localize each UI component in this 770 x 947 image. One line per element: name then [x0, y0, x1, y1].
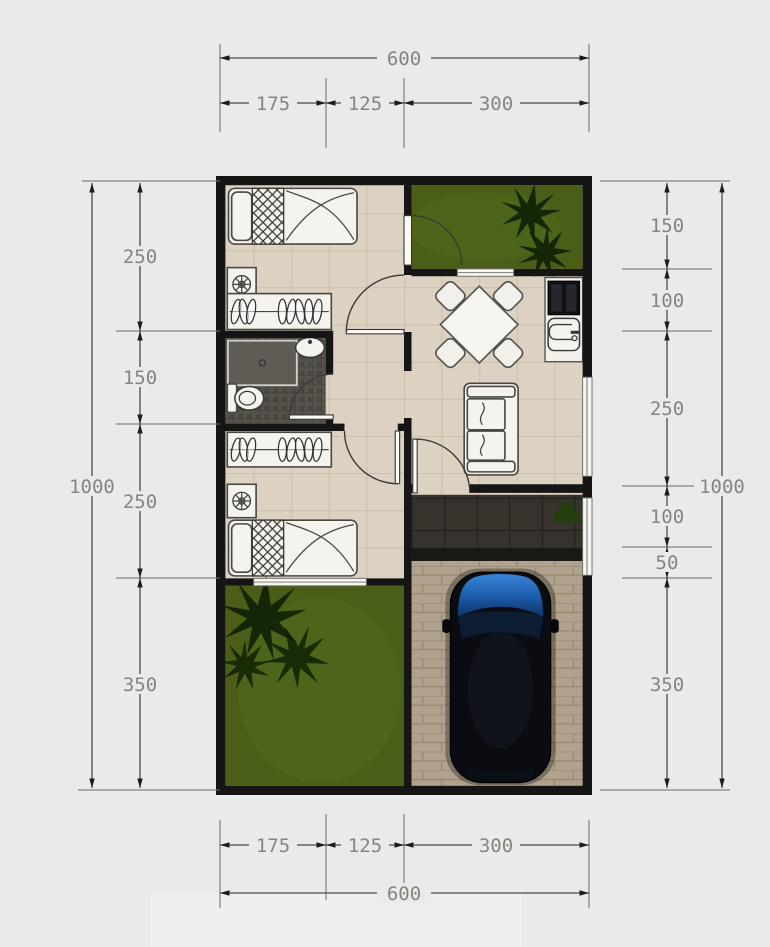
dim-left-total: 1000	[69, 476, 115, 498]
dim-right-total: 1000	[699, 476, 745, 498]
car-icon	[442, 568, 559, 785]
kitchen-counter	[545, 278, 583, 362]
nightstand-lamp-icon	[227, 484, 256, 517]
wardrobe-icon	[227, 432, 331, 467]
dim-top-seg-2: 125	[348, 93, 382, 115]
dim-right-seg-3: 250	[650, 398, 684, 420]
dimension-left: 250 150 250 350 1000	[64, 181, 220, 790]
dim-right-seg-1: 150	[650, 215, 684, 237]
terrace-step	[412, 547, 583, 561]
dim-right-seg-5: 50	[656, 552, 679, 574]
window	[583, 498, 592, 575]
dim-bottom-seg-3: 300	[479, 835, 513, 857]
dim-left-seg-3: 250	[123, 491, 157, 513]
dim-right-seg-2: 100	[650, 290, 684, 312]
dimension-top: 600 175 125 300	[220, 44, 589, 148]
shower-icon	[228, 341, 297, 386]
stove-icon	[548, 281, 579, 314]
washbasin-icon	[296, 338, 325, 358]
dim-top-seg-1: 175	[256, 93, 290, 115]
toilet-icon	[227, 384, 263, 412]
sofa-icon	[464, 383, 518, 475]
floor-plan-sheet: 600 175 125 300 175 125 300 600 250	[0, 0, 770, 947]
dim-bottom-seg-2: 125	[348, 835, 382, 857]
floor-plan	[209, 176, 592, 795]
dim-bottom-seg-1: 175	[256, 835, 290, 857]
wardrobe-icon	[227, 294, 331, 330]
dimension-right: 150 100 250 100 50 350 1000	[600, 181, 750, 790]
dim-top-total: 600	[387, 48, 421, 70]
kitchen-sink-icon	[548, 318, 579, 350]
dim-left-seg-4: 350	[123, 674, 157, 696]
dim-top-seg-3: 300	[479, 93, 513, 115]
bed-icon	[229, 188, 357, 244]
dining-table-icon	[434, 279, 525, 369]
front-garden	[209, 572, 404, 786]
dim-left-seg-2: 150	[123, 367, 157, 389]
dim-left-seg-1: 250	[123, 246, 157, 268]
dim-right-seg-4: 100	[650, 506, 684, 528]
window	[457, 269, 513, 276]
bed-icon	[229, 520, 357, 576]
dim-right-seg-6: 350	[650, 674, 684, 696]
floor-plan-drawing: 600 175 125 300 175 125 300 600 250	[0, 0, 770, 947]
window	[583, 377, 592, 476]
background-panel	[150, 893, 522, 947]
window	[254, 578, 367, 585]
dim-bottom-total: 600	[387, 883, 421, 905]
